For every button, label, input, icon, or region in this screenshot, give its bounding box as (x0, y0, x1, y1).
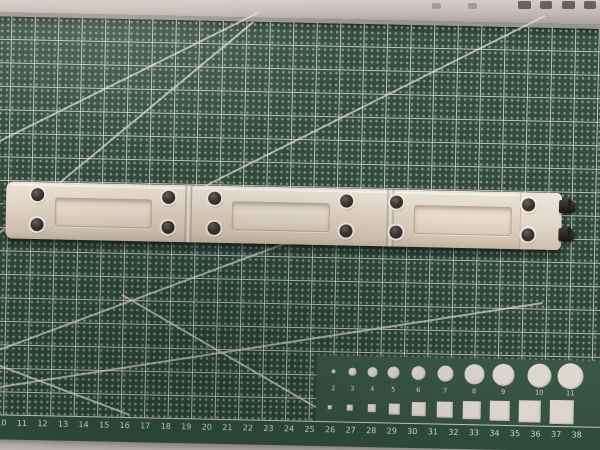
mat-reference-circle (527, 363, 551, 387)
mat-ruler-number: 33 (469, 428, 479, 437)
mat-reference-circle (492, 364, 514, 386)
mat-ruler-number: 29 (387, 426, 397, 435)
mat-ruler-number: 10 (0, 418, 7, 427)
mat-ruler-number: 19 (181, 422, 191, 431)
mat-circle-label: 5 (391, 387, 395, 394)
beam-pin-hole (521, 228, 534, 241)
top-strip-mark (540, 1, 552, 9)
mat-circle-label: 10 (535, 390, 543, 397)
mat-reference-circle (368, 367, 378, 377)
mat-reference-circle (465, 364, 485, 384)
mat-ruler-number: 26 (325, 425, 335, 434)
mat-reference-square (346, 404, 353, 411)
mat-ruler-number: 31 (428, 427, 438, 436)
mat-ruler-number: 32 (448, 428, 458, 437)
top-strip-mark (432, 3, 441, 9)
mat-reference-square (463, 401, 481, 419)
mat-circle-label: 2 (331, 385, 335, 392)
mat-reference-square (549, 400, 574, 425)
mat-ruler-number: 21 (222, 423, 232, 432)
mat-ruler-number: 22 (243, 423, 253, 432)
mat-reference-circle (557, 363, 584, 390)
mat-ruler-number: 28 (366, 426, 376, 435)
mat-ruler-number: 12 (37, 419, 47, 428)
technic-beam-assembly (5, 181, 561, 250)
mat-reference-square (519, 400, 541, 422)
mat-reference-circle (349, 368, 356, 375)
mat-reference-circle (411, 366, 426, 381)
beam-pin-hole (30, 217, 43, 230)
beam-pin-hole (339, 194, 352, 207)
mat-ruler-number: 38 (571, 430, 581, 439)
top-strip-mark (562, 1, 575, 9)
top-strip-mark (468, 3, 477, 9)
mat-reference-square (388, 403, 399, 414)
mat-shapes-panel: 234567891011 (316, 355, 600, 428)
top-strip-mark (584, 1, 596, 9)
mat-circle-label: 9 (501, 389, 505, 396)
beam-pin-hole (31, 187, 44, 200)
mat-circle-label: 3 (350, 386, 354, 393)
beam-recessed-channel (231, 201, 330, 232)
mat-ruler-number: 24 (284, 424, 294, 433)
mat-ruler-number: 13 (58, 420, 68, 429)
mat-ruler-number: 15 (99, 420, 109, 429)
mat-ruler-number: 35 (510, 429, 520, 438)
mat-circle-label: 6 (416, 387, 420, 394)
mat-reference-square (437, 402, 453, 418)
top-strip-mark (518, 1, 531, 9)
mat-circle-label: 4 (370, 386, 374, 393)
cutting-mat: 234567891011 101112131415161718192021222… (0, 12, 600, 450)
mat-circle-label: 7 (443, 388, 447, 395)
beam-pin-hole (339, 224, 352, 237)
mat-reference-square (367, 404, 376, 413)
connector-pin (559, 200, 575, 213)
mat-ruler-number: 23 (263, 424, 273, 433)
mat-circle-label: 11 (566, 390, 574, 397)
mat-ruler-number: 25 (304, 425, 314, 434)
beam-pin-hole (161, 220, 174, 233)
mat-reference-circle (437, 365, 454, 382)
mat-ruler-number: 34 (489, 429, 499, 438)
mat-ruler-number: 27 (345, 426, 355, 435)
mat-ruler-number: 36 (530, 429, 540, 438)
mat-ruler-number: 17 (140, 421, 150, 430)
mat-reference-circle (387, 366, 399, 378)
beam-segment-seam (184, 185, 192, 242)
beam-pin-hole (208, 191, 221, 204)
mat-ruler-number: 16 (119, 421, 129, 430)
mat-circle-label: 8 (472, 388, 476, 395)
mat-ruler-number: 20 (202, 423, 212, 432)
beam-pin-hole (389, 195, 402, 208)
photo-scene: 234567891011 101112131415161718192021222… (0, 0, 600, 450)
beam-pin-hole (521, 198, 534, 211)
mat-ruler-number: 30 (407, 427, 417, 436)
mat-ruler-number: 11 (17, 419, 27, 428)
beam-recessed-channel (413, 205, 512, 236)
mat-ruler-number: 14 (78, 420, 88, 429)
mat-ruler-number: 18 (161, 422, 171, 431)
beam-pin-hole (389, 225, 402, 238)
mat-reference-square (490, 401, 510, 421)
mat-reference-square (412, 402, 425, 415)
connector-pin (558, 228, 574, 241)
mat-reference-circle (331, 369, 336, 374)
mat-reference-square (328, 405, 332, 409)
mat-ruler-number: 37 (551, 430, 561, 439)
beam-pin-hole (162, 190, 175, 203)
beam-pin-hole (207, 221, 220, 234)
beam-recessed-channel (55, 197, 153, 228)
